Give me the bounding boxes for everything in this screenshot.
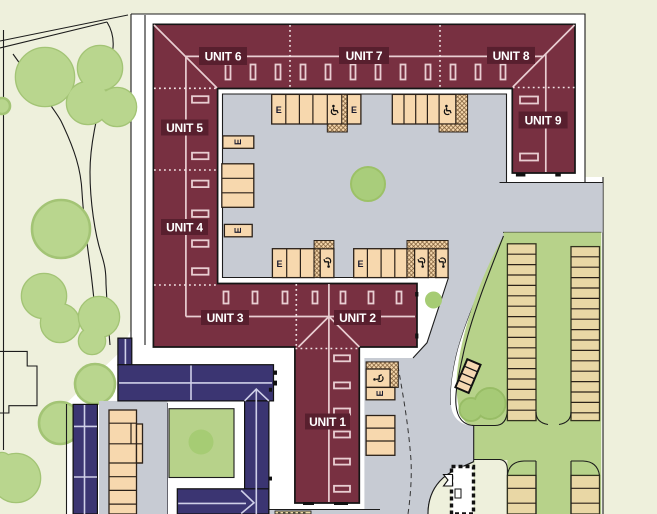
svg-text:UNIT 5: UNIT 5 (166, 121, 203, 135)
svg-text:UNIT 9: UNIT 9 (525, 114, 562, 128)
svg-text:E: E (233, 227, 243, 233)
svg-text:UNIT 2: UNIT 2 (339, 311, 376, 325)
svg-text:E: E (276, 259, 282, 269)
svg-text:UNIT 7: UNIT 7 (346, 49, 383, 63)
svg-text:UNIT 3: UNIT 3 (207, 311, 244, 325)
svg-text:E: E (351, 105, 357, 115)
svg-text:UNIT 1: UNIT 1 (309, 415, 346, 429)
svg-text:E: E (276, 105, 282, 115)
svg-text:E: E (375, 390, 385, 396)
svg-text:UNIT 4: UNIT 4 (166, 221, 203, 235)
svg-text:E: E (357, 259, 363, 269)
svg-text:UNIT 6: UNIT 6 (205, 50, 242, 64)
svg-text:E: E (233, 139, 243, 145)
svg-text:UNIT 8: UNIT 8 (493, 49, 530, 63)
